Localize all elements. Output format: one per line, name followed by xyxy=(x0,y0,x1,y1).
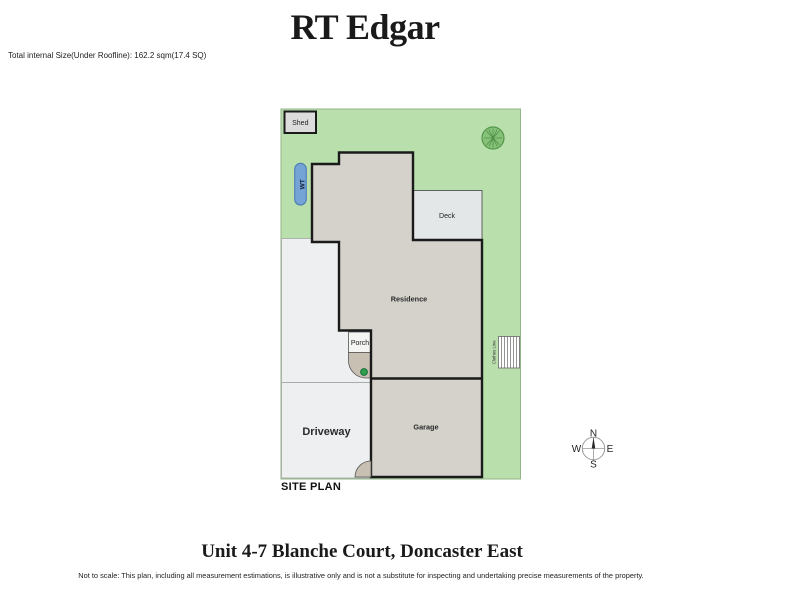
disclaimer-text: Not to scale: This plan, including all m… xyxy=(78,571,643,580)
compass-south-label: S xyxy=(590,460,597,471)
tree-icon xyxy=(482,127,504,149)
site-plan-caption: SITE PLAN xyxy=(281,481,341,493)
site-plan-drawing: Shed WT Driveway Deck Porch Residence Ga… xyxy=(0,0,800,600)
residence-label: Residence xyxy=(391,295,428,304)
compass-north-label: N xyxy=(590,429,597,440)
compass-west-label: W xyxy=(572,444,582,455)
deck-label: Deck xyxy=(439,213,455,220)
shed-label: Shed xyxy=(292,120,308,127)
garden-dot-icon xyxy=(361,369,368,376)
address-title: Unit 4-7 Blanche Court, Doncaster East xyxy=(201,541,523,563)
driveway-label: Driveway xyxy=(302,426,351,438)
garage-label: Garage xyxy=(413,423,438,432)
water-tank-label: WT xyxy=(300,179,307,189)
porch-label: Porch xyxy=(351,340,369,347)
clothes-line xyxy=(499,337,520,369)
compass-icon: N W E S xyxy=(572,429,614,471)
compass-east-label: E xyxy=(607,444,614,455)
clothes-line-label: Clothes Line xyxy=(492,340,497,364)
